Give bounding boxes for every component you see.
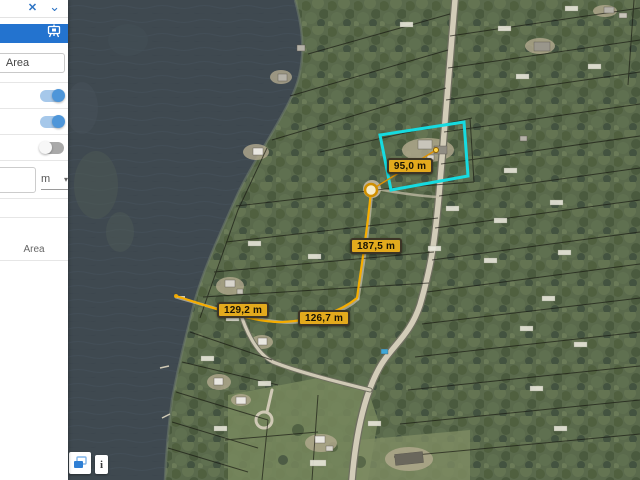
- map-viewport[interactable]: 129,2 m 126,7 m 187,5 m 95,0 m i: [68, 0, 640, 480]
- unit-select-value: m: [41, 173, 50, 185]
- measure-tool-panel: ✕ ⌄ Area m ▾ Area: [0, 0, 68, 480]
- dropdown-arrow-icon: ▾: [64, 175, 68, 184]
- chevron-down-icon[interactable]: ⌄: [47, 0, 62, 14]
- info-button[interactable]: i: [95, 455, 108, 474]
- panel-header: ✕ ⌄: [0, 0, 68, 18]
- measurement-start-point: [174, 294, 178, 298]
- presentation-easel-icon[interactable]: [47, 24, 61, 43]
- panel-toolbar: [0, 24, 68, 43]
- divider: [0, 260, 68, 261]
- map-canvas[interactable]: [68, 0, 640, 480]
- toggle-switch-on[interactable]: [40, 116, 64, 128]
- toggle-switch-off[interactable]: [40, 142, 64, 154]
- measurement-vertex-marker[interactable]: [365, 184, 377, 196]
- area-result-label: Area: [0, 238, 68, 260]
- collapsed-section: [0, 199, 68, 218]
- unit-row: m ▾: [0, 161, 68, 199]
- basemap-switcher-button[interactable]: [69, 452, 91, 474]
- option-row-1: [0, 83, 68, 109]
- close-icon[interactable]: ✕: [26, 2, 39, 15]
- option-row-2: [0, 109, 68, 135]
- layers-icon: [73, 456, 87, 470]
- swimming-pool: [381, 349, 388, 354]
- measure-value-input[interactable]: [0, 167, 36, 193]
- measure-mode-area-button[interactable]: Area: [0, 53, 65, 73]
- measurement-end-point: [434, 148, 439, 153]
- unit-select[interactable]: m ▾: [41, 169, 68, 190]
- option-row-3: [0, 135, 68, 161]
- toggle-switch-on[interactable]: [40, 90, 64, 102]
